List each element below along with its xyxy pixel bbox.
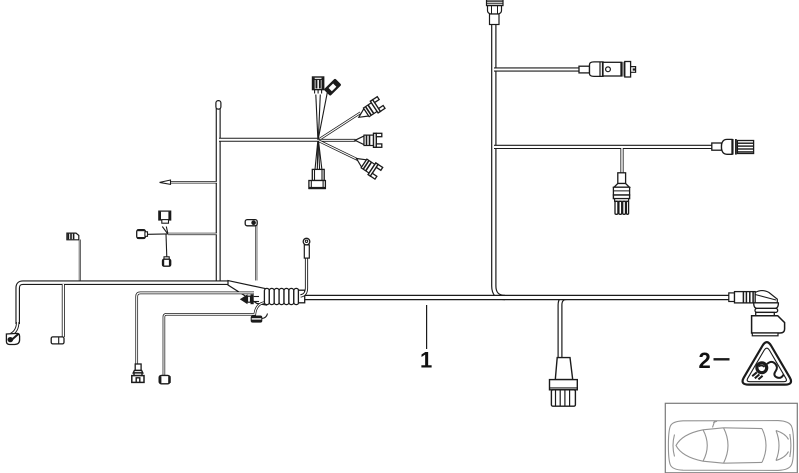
svg-text:1: 1 — [420, 348, 432, 373]
svg-text:2: 2 — [699, 348, 711, 373]
